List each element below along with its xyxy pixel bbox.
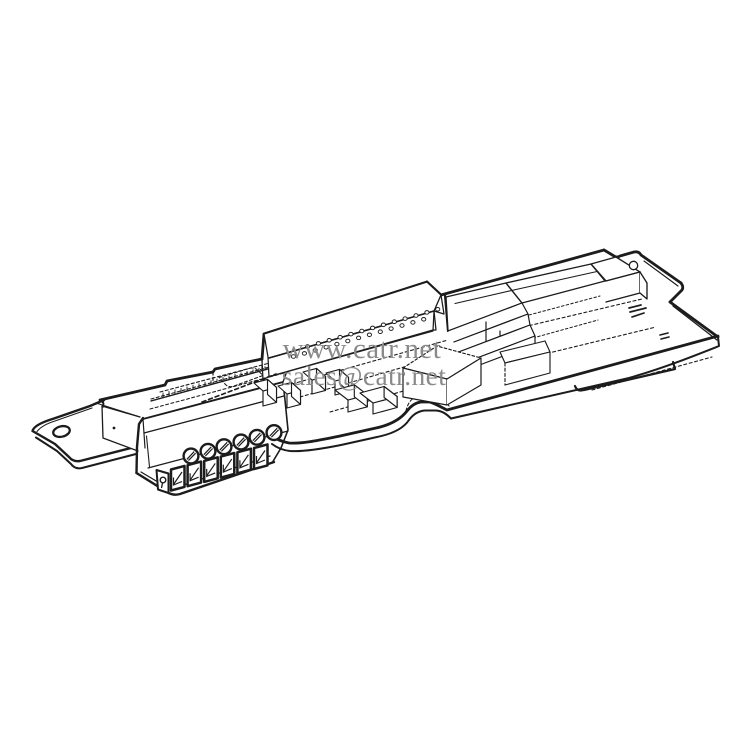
svg-text:sales@catr.net: sales@catr.net: [282, 360, 447, 391]
